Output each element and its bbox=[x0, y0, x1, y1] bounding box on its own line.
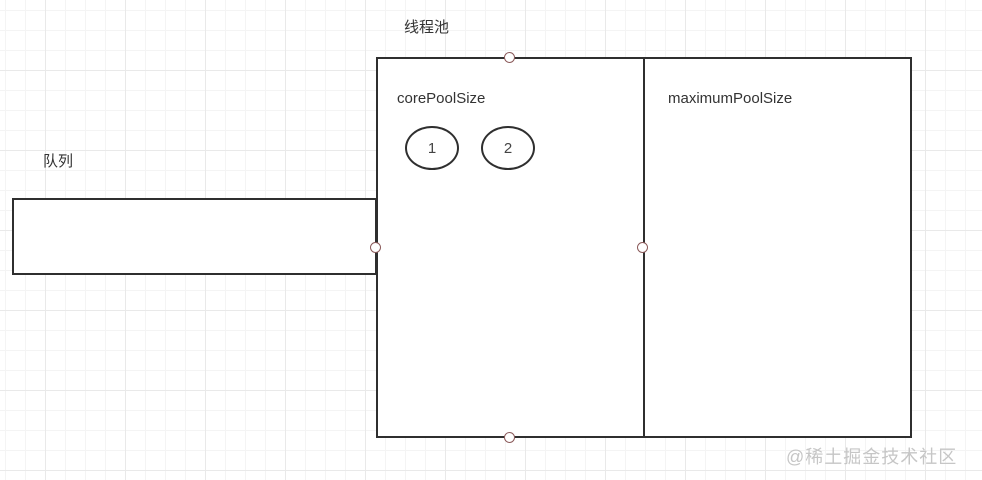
queue-label: 队列 bbox=[43, 153, 73, 171]
maximum-pool-size-label: maximumPoolSize bbox=[668, 90, 792, 107]
connection-handle-left[interactable] bbox=[370, 242, 381, 253]
connection-handle-bottom[interactable] bbox=[504, 432, 515, 443]
thread-pool-title: 线程池 bbox=[404, 19, 449, 37]
connection-handle-top[interactable] bbox=[504, 52, 515, 63]
thread-circle-1-label: 1 bbox=[428, 140, 436, 157]
thread-circle-2[interactable]: 2 bbox=[481, 126, 535, 170]
thread-circle-2-label: 2 bbox=[504, 140, 512, 157]
watermark: @稀土掘金技术社区 bbox=[786, 443, 957, 469]
core-pool-size-label: corePoolSize bbox=[397, 90, 485, 107]
connection-handle-middle[interactable] bbox=[637, 242, 648, 253]
queue-shape[interactable] bbox=[12, 198, 377, 275]
thread-circle-1[interactable]: 1 bbox=[405, 126, 459, 170]
diagram-canvas: 线程池 队列 corePoolSize maximumPoolSize 1 2 … bbox=[0, 0, 982, 480]
